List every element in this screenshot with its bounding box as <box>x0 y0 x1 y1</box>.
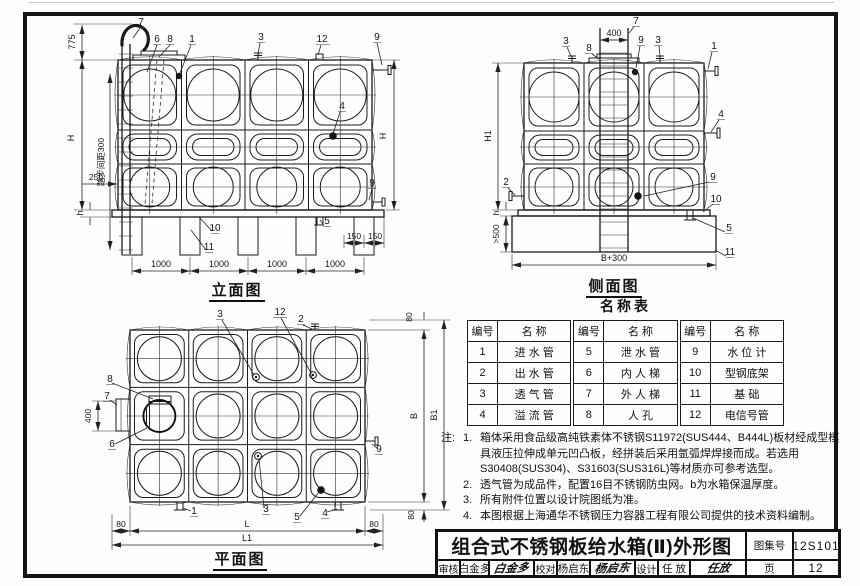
cell-no: 3 <box>468 384 498 405</box>
dim-text: 400 <box>606 28 621 38</box>
note-item: 4. 本图根据上海通华不锈钢压力容器工程有限公司提供的技术资料编制。 <box>441 509 841 525</box>
table-header-row: 编号 名 称 <box>574 321 677 342</box>
dim-text: H <box>378 133 388 140</box>
inlet-point <box>176 73 182 79</box>
scan-artifact-line <box>28 2 834 3</box>
part-label: 2 <box>298 314 304 325</box>
part-label: 9 <box>376 444 382 455</box>
cell-no: 11 <box>680 384 710 405</box>
inner-ladder-dashed <box>145 60 164 204</box>
part-label: 10 <box>209 223 221 234</box>
col-header-name: 名 称 <box>710 321 783 342</box>
parts-table-title: 名称表 <box>467 296 784 316</box>
note-number: 1. <box>463 431 480 447</box>
table-row: 12电信号管 <box>680 405 783 426</box>
part-label: 1 <box>191 506 197 517</box>
sign-role: 校对 <box>534 560 557 576</box>
parts-table: 编号 名 称 5泄 水 管 6内 人 梯 7外 人 梯 8人 孔 <box>573 320 677 426</box>
table-row: 8人 孔 <box>574 405 677 426</box>
note-number: 4. <box>463 509 480 525</box>
note-number: 2. <box>463 478 480 494</box>
dim-text: B+300 <box>601 253 627 263</box>
dim-text: 1000 <box>209 259 229 269</box>
signature-script: 白金多 <box>493 560 531 576</box>
page-label: 页 <box>746 560 793 576</box>
part-label: 3 <box>263 504 269 515</box>
dim-text: H <box>66 135 76 142</box>
note-text: 所有附件位置以设计院图纸为准。 <box>480 493 841 509</box>
elevation-base-frame <box>112 210 384 255</box>
col-header-name: 名 称 <box>498 321 571 342</box>
part-label: 12 <box>316 34 328 45</box>
part-label: 5 <box>726 223 732 234</box>
plan-fittings <box>174 324 378 510</box>
table-row: 4溢 流 管 <box>468 405 571 426</box>
cell-name: 溢 流 管 <box>498 405 571 426</box>
cell-no: 5 <box>574 342 604 363</box>
plan-tank-body <box>126 326 369 506</box>
level-gauge-pipe <box>388 66 391 75</box>
cell-no: 4 <box>468 405 498 426</box>
cell-name: 型钢底架 <box>710 363 783 384</box>
cell-no: 8 <box>574 405 604 426</box>
dim-text: 775 <box>67 34 77 49</box>
note-number: 3. <box>463 493 480 509</box>
side-view: 7 3 8 9 3 1 4 2 9 10 5 11 400 H1 h >500 … <box>462 14 850 306</box>
cell-no: 2 <box>468 363 498 384</box>
note-text: 本图根据上海通华不锈钢压力容器工程有限公司提供的技术资料编制。 <box>480 509 841 525</box>
cell-no: 9 <box>680 342 710 363</box>
cell-no: 12 <box>680 405 710 426</box>
dim-text: 80 <box>404 312 414 322</box>
part-label: 11 <box>725 247 736 258</box>
elevation-title: 立面图 <box>211 281 262 299</box>
cell-name: 水 位 计 <box>710 342 783 363</box>
cell-name: 电信号管 <box>710 405 783 426</box>
note-item: 注: 1. 箱体采用食品级高纯铁素体不锈钢S11972(SUS444、B444L… <box>441 431 841 478</box>
overflow-pipe <box>717 128 720 138</box>
sign-role: 审核 <box>437 560 460 576</box>
elevation-view: 7 6 8 1 3 12 9 4 9 5 10 11 775 <box>20 14 460 310</box>
notes-section: 注: 1. 箱体采用食品级高纯铁素体不锈钢S11972(SUS444、B444L… <box>441 431 841 525</box>
drain-stub <box>687 210 693 220</box>
signature: 白金多 <box>489 560 534 576</box>
part-label: 7 <box>104 391 110 402</box>
dim-text: h <box>75 210 85 215</box>
cell-no: 7 <box>574 384 604 405</box>
drawing-title: 组合式不锈钢板给水箱(Ⅱ)外形图 <box>437 531 746 560</box>
table-row: 7外 人 梯 <box>574 384 677 405</box>
parts-table-groups: 编号 名 称 1进 水 管 2出 水 管 3透 气 管 4溢 流 管 编号 名 … <box>467 320 784 426</box>
table-header-row: 编号 名 称 <box>468 321 571 342</box>
dim-text: 80 <box>116 519 126 529</box>
table-row: 5泄 水 管 <box>574 342 677 363</box>
part-label: 8 <box>107 374 113 385</box>
outlet-pipe <box>509 192 512 201</box>
part-label: 8 <box>167 34 173 45</box>
dim-text: B1 <box>429 409 439 420</box>
dim-text: 250 <box>89 172 103 182</box>
cell-no: 10 <box>680 363 710 384</box>
part-label: 9 <box>374 32 380 43</box>
part-label: 4 <box>322 508 328 519</box>
part-label: 1 <box>189 34 195 45</box>
part-label: 9 <box>638 35 644 46</box>
side-tank-body <box>520 59 708 214</box>
part-label: 8 <box>586 43 592 54</box>
table-row: 2出 水 管 <box>468 363 571 384</box>
atlas-label: 图集号 <box>746 531 793 560</box>
note-item: 2. 透气管为成品件，配置16目不锈钢防虫网。b为水箱保温厚度。 <box>441 478 841 494</box>
parts-table: 编号 名 称 9水 位 计 10型钢底架 11基 础 12电信号管 <box>680 320 784 426</box>
title-block: 组合式不锈钢板给水箱(Ⅱ)外形图 图集号 12S101 审核 白金多 白金多 校… <box>435 529 841 578</box>
parts-table: 编号 名 称 1进 水 管 2出 水 管 3透 气 管 4溢 流 管 <box>467 320 571 426</box>
part-label: 5 <box>324 216 330 227</box>
cell-name: 进 水 管 <box>498 342 571 363</box>
note-item: 3. 所有附件位置以设计院图纸为准。 <box>441 493 841 509</box>
cell-name: 出 水 管 <box>498 363 571 384</box>
part-label: 9 <box>369 178 375 189</box>
vent-pipe <box>254 53 262 60</box>
part-label: 2 <box>503 177 509 188</box>
table-row: 6内 人 梯 <box>574 363 677 384</box>
part-label: 10 <box>710 194 722 205</box>
cell-name: 透 气 管 <box>498 384 571 405</box>
level-gauge-point <box>632 69 638 75</box>
cell-name: 人 孔 <box>604 405 677 426</box>
table-row: 3透 气 管 <box>468 384 571 405</box>
dim-text: 150 <box>347 231 361 241</box>
col-header-no: 编号 <box>468 321 498 342</box>
dim-text: 1000 <box>151 259 171 269</box>
drain-stub <box>317 217 323 225</box>
signal-pipe-stub <box>316 54 323 60</box>
part-label: 7 <box>138 17 144 28</box>
col-header-no: 编号 <box>574 321 604 342</box>
side-base-foundation <box>512 210 716 252</box>
part-label: 1 <box>711 41 717 52</box>
dim-text: 400 <box>83 409 93 423</box>
cell-name: 基 础 <box>710 384 783 405</box>
part-label: 11 <box>204 242 215 253</box>
dim-text: H1 <box>483 130 493 142</box>
inlet-pipe <box>715 67 718 76</box>
dim-text: 1000 <box>267 259 287 269</box>
dim-text: >500 <box>491 224 501 243</box>
part-label: 4 <box>718 109 724 120</box>
table-row: 9水 位 计 <box>680 342 783 363</box>
part-label: 3 <box>563 36 569 47</box>
col-header-no: 编号 <box>680 321 710 342</box>
dim-text: h <box>491 210 501 215</box>
cell-no: 1 <box>468 342 498 363</box>
table-header-row: 编号 名 称 <box>680 321 783 342</box>
table-row: 10型钢底架 <box>680 363 783 384</box>
signature-script: 杨启东 <box>594 560 632 576</box>
cell-name: 外 人 梯 <box>604 384 677 405</box>
cell-no: 6 <box>574 363 604 384</box>
sign-role: 设计 <box>635 560 658 576</box>
signature-script: 任放 <box>705 560 731 576</box>
table-row: 1进 水 管 <box>468 342 571 363</box>
dim-text: B <box>409 413 419 419</box>
elevation-tank-body <box>114 56 376 214</box>
elevation-dimensions: 775 H 踏步间距300 250 h H 150 150 1000 1000 … <box>66 24 400 275</box>
notes-prefix: 注: <box>441 431 463 447</box>
sign-name: 杨启东 <box>557 560 590 576</box>
cell-name: 泄 水 管 <box>604 342 677 363</box>
atlas-number: 12S101 <box>793 531 839 560</box>
part-label: 9 <box>710 172 716 183</box>
cell-name: 内 人 梯 <box>604 363 677 384</box>
part-label: 3 <box>655 35 661 46</box>
part-label: 3 <box>217 309 223 320</box>
plan-title: 平面图 <box>214 551 265 568</box>
dim-text: 80 <box>406 510 416 520</box>
sign-name: 白金多 <box>460 560 489 576</box>
part-label: 6 <box>109 439 115 450</box>
part-label: 12 <box>274 307 286 318</box>
side-title: 侧面图 <box>588 277 639 295</box>
dim-text: L <box>244 519 249 529</box>
part-label: 5 <box>294 512 300 523</box>
part-label: 4 <box>339 101 345 112</box>
col-header-name: 名 称 <box>604 321 677 342</box>
note-text: 透气管为成品件，配置16目不锈钢防虫网。b为水箱保温厚度。 <box>480 478 841 494</box>
parts-table-section: 名称表 编号 名 称 1进 水 管 2出 水 管 3透 气 管 4溢 流 管 编… <box>467 296 784 426</box>
page-number: 12 <box>793 560 839 576</box>
dim-text: 1000 <box>325 259 345 269</box>
table-row: 11基 础 <box>680 384 783 405</box>
signature: 任放 <box>690 560 746 576</box>
note-text: 箱体采用食品级高纯铁素体不锈钢S11972(SUS444、B444L)板材经成型… <box>480 431 841 478</box>
sign-name: 任 放 <box>658 560 690 576</box>
plan-view: 8 7 6 3 12 2 9 1 3 5 4 400 80 B B1 80 <box>20 300 460 582</box>
dim-text: L1 <box>242 533 252 543</box>
signature: 杨启东 <box>590 560 635 576</box>
drawing-page: 7 6 8 1 3 12 9 4 9 5 10 11 775 <box>0 0 860 586</box>
part-label: 3 <box>258 32 264 43</box>
dim-text: 150 <box>368 231 382 241</box>
dim-text: 80 <box>369 519 379 529</box>
part-label: 7 <box>633 16 639 27</box>
part-label: 6 <box>154 34 160 45</box>
